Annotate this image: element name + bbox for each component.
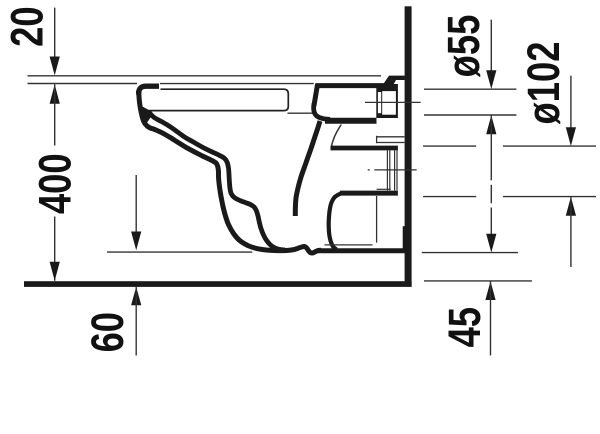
svg-text:60: 60 [82, 312, 133, 352]
svg-text:45: 45 [439, 307, 490, 347]
svg-text:ø55: ø55 [438, 15, 489, 78]
svg-text:20: 20 [2, 6, 53, 46]
svg-text:ø102: ø102 [518, 42, 569, 125]
svg-text:400: 400 [30, 153, 81, 214]
